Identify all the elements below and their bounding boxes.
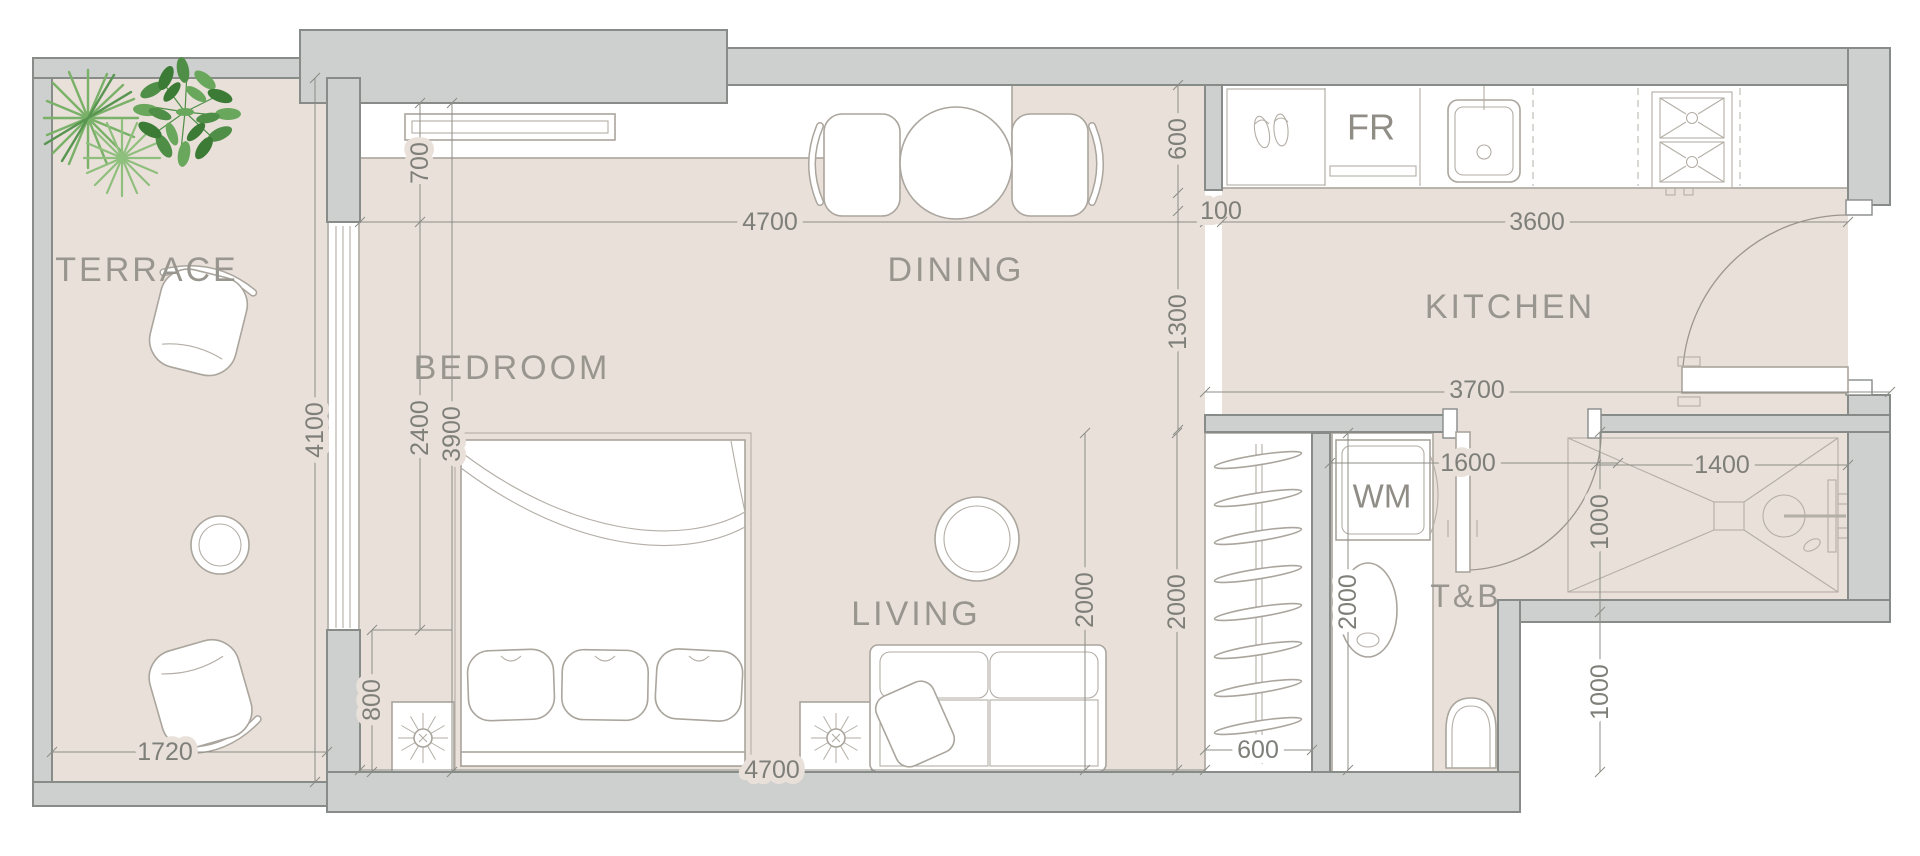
dim-wardrobe-depth: 2000: [1163, 574, 1191, 630]
terrace-table: [191, 516, 249, 574]
wall-notch-side: [1498, 600, 1520, 790]
bedside-table-left: [392, 702, 454, 774]
dim-terrace-depth: 4100: [301, 402, 329, 458]
floor-plan-page: FR: [0, 0, 1920, 856]
wall-dining-kitchen-divider: [1205, 85, 1222, 190]
wall-notch-bottom: [1498, 600, 1890, 622]
dining-chair: [824, 114, 900, 216]
dim-counter-depth: 600: [1164, 118, 1192, 160]
floor-plan-drawing: FR: [0, 0, 1920, 856]
dim-bedroom-dining-width: 4700: [742, 208, 798, 236]
dim-utility-nook-width: 1600: [1440, 449, 1496, 477]
door-jamb: [1443, 409, 1457, 438]
tb-label: T&B: [1430, 578, 1501, 614]
dim-kitchen-total-width: 3700: [1449, 376, 1505, 404]
dim-window-height: 2400: [406, 400, 434, 456]
wall-bottom-main: [327, 772, 1520, 812]
wall-top-right: [727, 48, 1890, 85]
door-jamb: [1846, 200, 1872, 215]
wall-window-pillar-top: [327, 78, 360, 222]
wall-right-upper: [1848, 48, 1890, 205]
entrance-door-leaf: [1682, 367, 1848, 393]
wall-bottom-terrace: [33, 782, 327, 806]
coffee-table: [935, 497, 1019, 581]
dim-utility-depth: 2000: [1334, 574, 1362, 630]
fridge-label: FR: [1347, 107, 1395, 148]
sliding-window: [328, 222, 359, 630]
sofa: [870, 645, 1106, 772]
toilet-bowl: [1446, 698, 1496, 768]
dining-set: [812, 107, 1100, 219]
kitchen-label: KITCHEN: [1425, 288, 1595, 326]
kitchen-sink: [1448, 100, 1520, 182]
dining-chair: [1012, 114, 1088, 216]
dining-table: [900, 107, 1012, 219]
wall-left: [33, 58, 52, 790]
dim-shower-width: 1400: [1694, 451, 1750, 479]
living-label: LIVING: [851, 595, 980, 633]
dim-bedroom-total: 3900: [438, 406, 466, 462]
wall-wardrobe-divider: [1312, 433, 1330, 772]
door-jamb: [1846, 380, 1872, 395]
bed-headboard: [461, 752, 745, 766]
wall-window-pillar-bottom: [327, 630, 360, 772]
terrace-label: TERRACE: [55, 251, 238, 289]
kitchen-counter: [1222, 85, 1848, 188]
dim-closet-depth: 700: [406, 142, 434, 184]
dim-counter-wall-gap: 100: [1200, 197, 1242, 225]
dim-dining-passage: 1300: [1164, 294, 1192, 350]
bedside-table-right: [800, 702, 872, 774]
dim-tb-lower-depth: 1000: [1586, 664, 1614, 720]
wall-kitchen-bottom-left: [1205, 415, 1455, 432]
dim-terrace-width: 1720: [137, 738, 193, 766]
dim-kitchen-counter-run: 3600: [1509, 208, 1565, 236]
washing-machine-label: WM: [1353, 478, 1412, 515]
dim-living-depth: 2000: [1071, 572, 1099, 628]
leaf: [176, 108, 194, 116]
pillow: [561, 649, 648, 720]
wall-top-block: [300, 30, 727, 103]
pillow: [654, 648, 744, 722]
bedroom-label: BEDROOM: [414, 349, 611, 387]
closet-shelf: [405, 114, 615, 140]
dim-tb-door-clearance: 1000: [1586, 494, 1614, 550]
wall-kitchen-bottom-right: [1595, 415, 1890, 432]
dim-wardrobe-width: 600: [1237, 736, 1279, 764]
dining-label: DINING: [888, 251, 1025, 289]
pillow: [467, 649, 555, 722]
bed: [455, 433, 751, 777]
dim-living-bottom-width: 4700: [744, 756, 800, 784]
dim-bed-side: 800: [358, 679, 386, 721]
